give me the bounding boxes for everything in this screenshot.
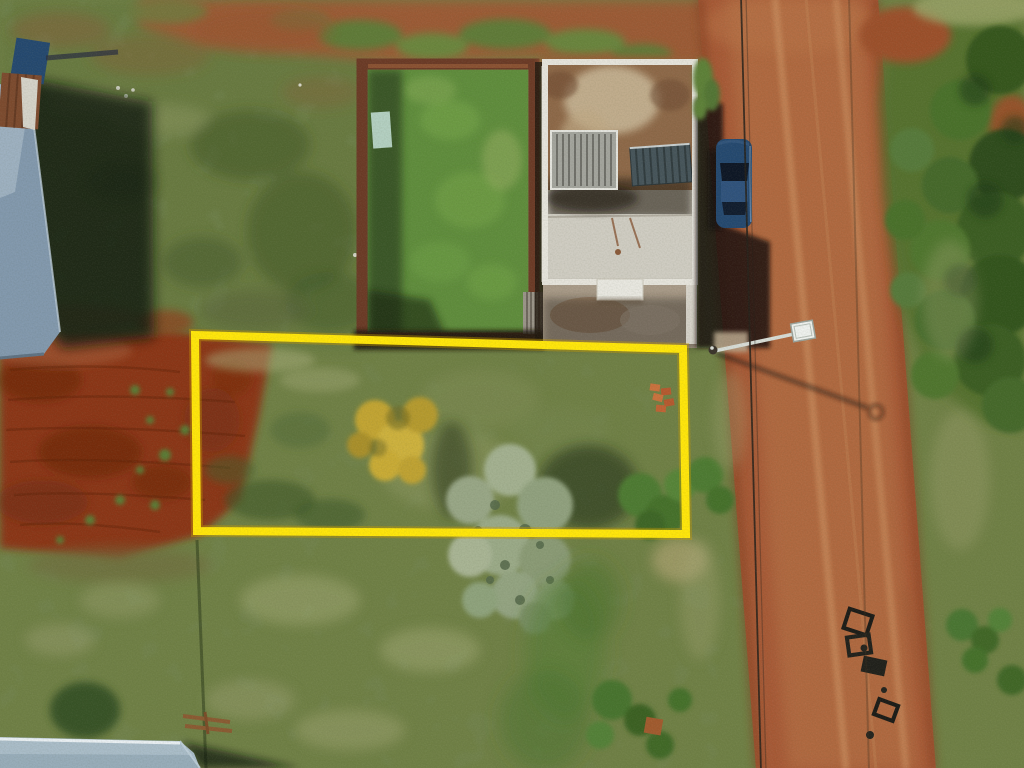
photo-grain (0, 0, 1024, 768)
grain-light (0, 0, 1024, 768)
aerial-photo (0, 0, 1024, 768)
aerial-photo-stage (0, 0, 1024, 768)
